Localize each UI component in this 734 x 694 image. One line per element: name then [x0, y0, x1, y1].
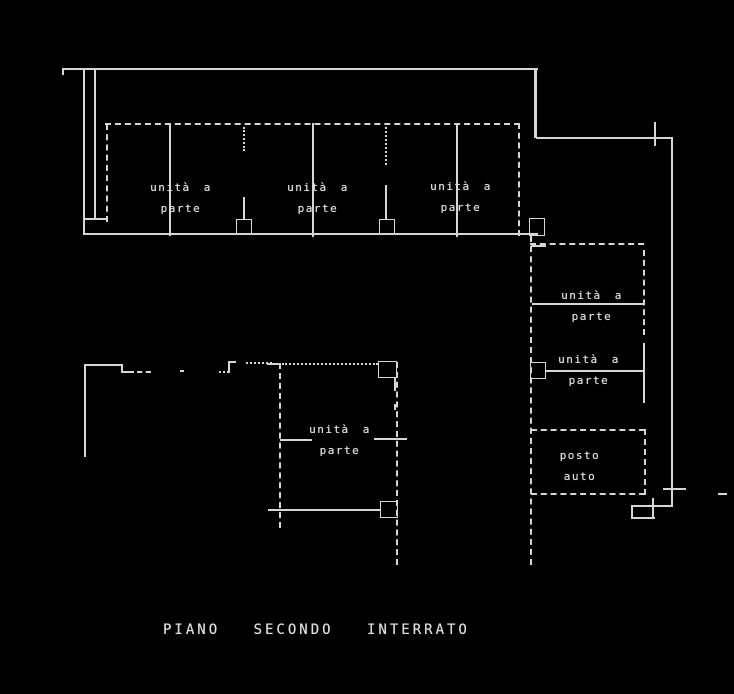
wall-segment — [106, 124, 108, 222]
tick-mark — [663, 488, 686, 490]
tick-mark — [652, 498, 654, 518]
room-label-line: unità a — [309, 419, 371, 440]
wall-segment — [531, 429, 645, 431]
wall-segment — [243, 197, 245, 220]
tick-mark — [654, 122, 656, 146]
wall-segment — [394, 404, 396, 410]
room-label-line: auto — [560, 466, 601, 487]
door-symbol — [380, 501, 398, 518]
wall-segment — [83, 68, 85, 235]
room-label-line: posto — [560, 445, 601, 466]
wall-segment — [243, 127, 245, 151]
room-label-line: unità a — [287, 177, 349, 198]
wall-segment — [374, 438, 407, 440]
room-label-line: parte — [309, 440, 371, 461]
wall-segment — [518, 123, 520, 236]
door-symbol — [379, 219, 395, 235]
wall-segment — [644, 429, 646, 495]
room-label-line: unità a — [558, 349, 620, 370]
wall-segment — [282, 363, 378, 365]
wall-segment — [536, 137, 673, 139]
wall-segment — [531, 493, 645, 495]
room-label: unità aparte — [287, 177, 349, 219]
room-label: unità aparte — [430, 176, 492, 218]
room-label-line: parte — [558, 370, 620, 391]
wall-segment — [268, 509, 380, 511]
door-symbol — [236, 219, 252, 235]
wall-segment — [121, 371, 134, 373]
door-symbol — [378, 361, 397, 378]
room-label: unità aparte — [150, 177, 212, 219]
wall-segment — [280, 439, 312, 441]
wall-segment — [643, 250, 645, 335]
wall-segment — [394, 378, 396, 391]
room-label-line: parte — [430, 197, 492, 218]
wall-segment — [671, 139, 673, 507]
wall-segment — [530, 243, 644, 245]
door-symbol — [530, 362, 546, 379]
wall-segment — [530, 236, 532, 565]
wall-segment — [84, 233, 538, 235]
plan-caption: PIANO SECONDO INTERRATO — [163, 622, 470, 638]
room-label-line: unità a — [561, 285, 623, 306]
wall-segment — [180, 370, 184, 372]
wall-segment — [385, 123, 387, 165]
room-label-line: parte — [287, 198, 349, 219]
room-label-line: parte — [150, 198, 212, 219]
wall-segment — [385, 185, 387, 220]
wall-segment — [279, 363, 281, 528]
wall-segment — [84, 364, 86, 457]
room-label-line: unità a — [150, 177, 212, 198]
wall-segment — [534, 69, 537, 138]
room-label-line: parte — [561, 306, 623, 327]
wall-segment — [94, 70, 96, 218]
room-label: postoauto — [560, 445, 601, 487]
wall-segment — [62, 68, 538, 70]
tick-mark — [718, 493, 727, 495]
wall-segment — [396, 362, 398, 565]
wall-segment — [62, 68, 64, 75]
wall-segment — [246, 362, 272, 364]
room-label: unità aparte — [309, 419, 371, 461]
wall-segment — [228, 362, 230, 373]
wall-segment — [137, 371, 151, 373]
wall-segment — [84, 218, 108, 220]
room-label-line: unità a — [430, 176, 492, 197]
floor-plan-sheet: PIANO SECONDO INTERRATO unità aparteunit… — [0, 0, 734, 694]
wall-segment — [531, 245, 546, 247]
floor-plan: PIANO SECONDO INTERRATO unità aparteunit… — [0, 0, 734, 694]
door-symbol — [529, 218, 545, 236]
room-label: unità aparte — [561, 285, 623, 327]
room-label: unità aparte — [558, 349, 620, 391]
wall-segment — [228, 361, 236, 363]
wall-segment — [84, 364, 122, 366]
wall-segment — [643, 343, 645, 403]
